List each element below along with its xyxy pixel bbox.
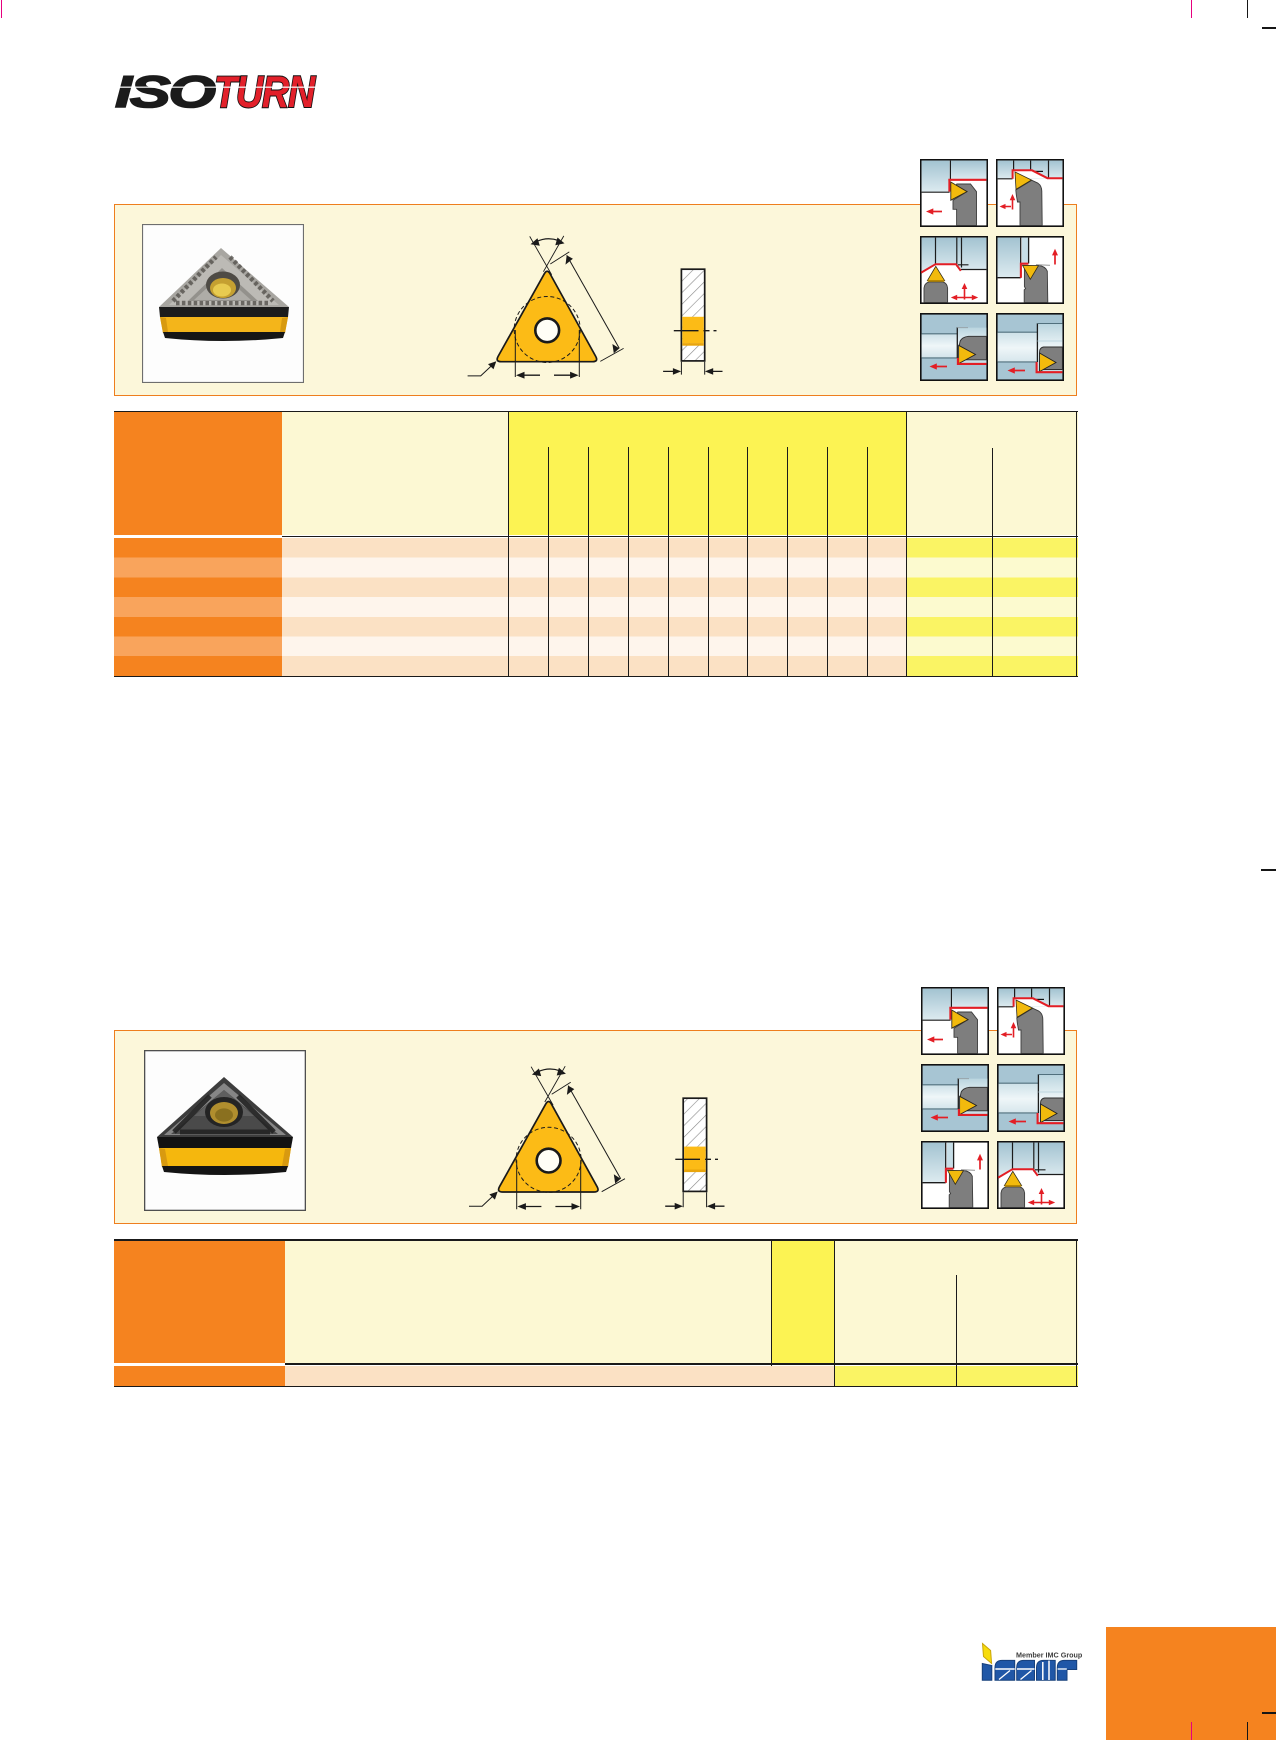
svg-text:TURN: TURN	[214, 68, 316, 116]
svg-text:Member IMC Group: Member IMC Group	[1016, 1651, 1083, 1660]
svg-text:ISO: ISO	[115, 68, 215, 116]
